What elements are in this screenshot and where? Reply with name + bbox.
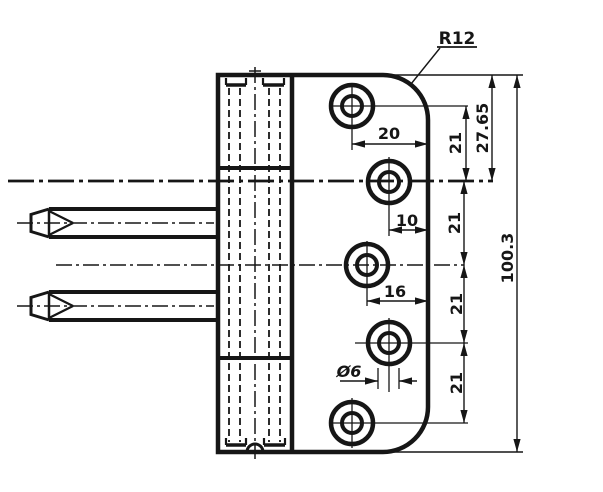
dim-20-label: 20	[378, 124, 400, 143]
dim-21-label: 21	[445, 212, 464, 234]
dim-21-label: 21	[446, 132, 465, 154]
drawing-canvas: 20 10 16 Ø6 21 21 21	[0, 0, 603, 492]
dim-100-3-label: 100.3	[498, 233, 517, 284]
hinge-technical-drawing: 20 10 16 Ø6 21 21 21	[0, 0, 603, 492]
dim-21-label: 21	[447, 293, 466, 315]
dim-16-label: 16	[384, 282, 406, 301]
dim-21-label: 21	[447, 372, 466, 394]
radius-label: R12	[439, 29, 476, 49]
dim-diameter-label: Ø6	[336, 362, 362, 381]
dim-27-65-label: 27.65	[473, 103, 492, 154]
dim-10-label: 10	[396, 211, 418, 230]
